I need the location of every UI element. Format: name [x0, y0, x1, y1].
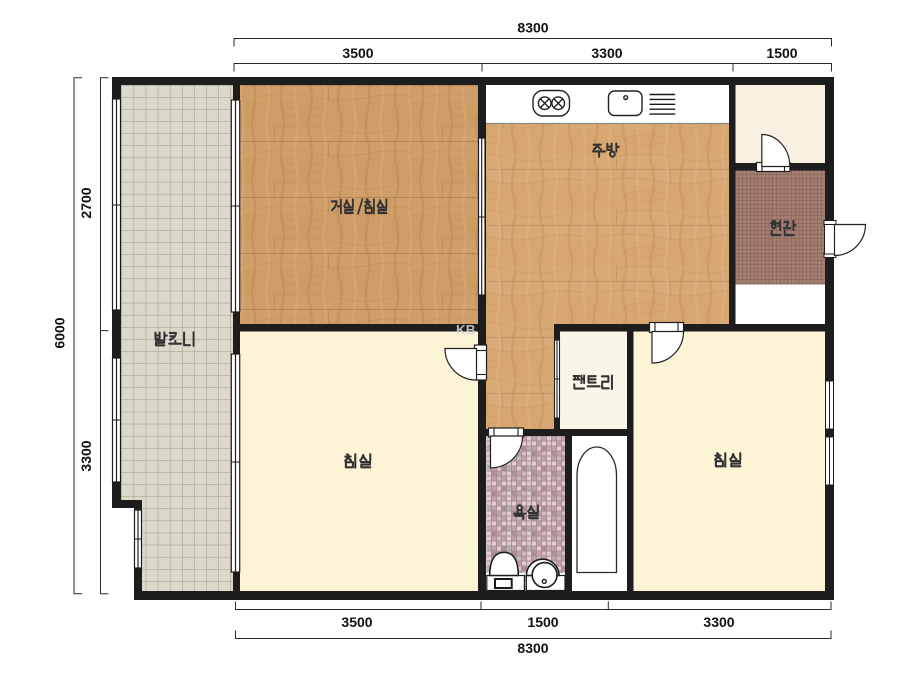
svg-text:1500: 1500 [527, 614, 558, 630]
svg-text:KB: KB [456, 323, 476, 338]
svg-text:6000: 6000 [52, 317, 68, 348]
svg-text:3500: 3500 [342, 45, 373, 61]
svg-text:2700: 2700 [78, 187, 94, 218]
svg-text:1500: 1500 [766, 45, 797, 61]
svg-text:3300: 3300 [591, 45, 622, 61]
svg-text:3300: 3300 [703, 614, 734, 630]
svg-text:8300: 8300 [517, 640, 548, 656]
svg-text:8300: 8300 [517, 20, 548, 36]
svg-text:3300: 3300 [78, 440, 94, 471]
svg-text:3500: 3500 [341, 614, 372, 630]
